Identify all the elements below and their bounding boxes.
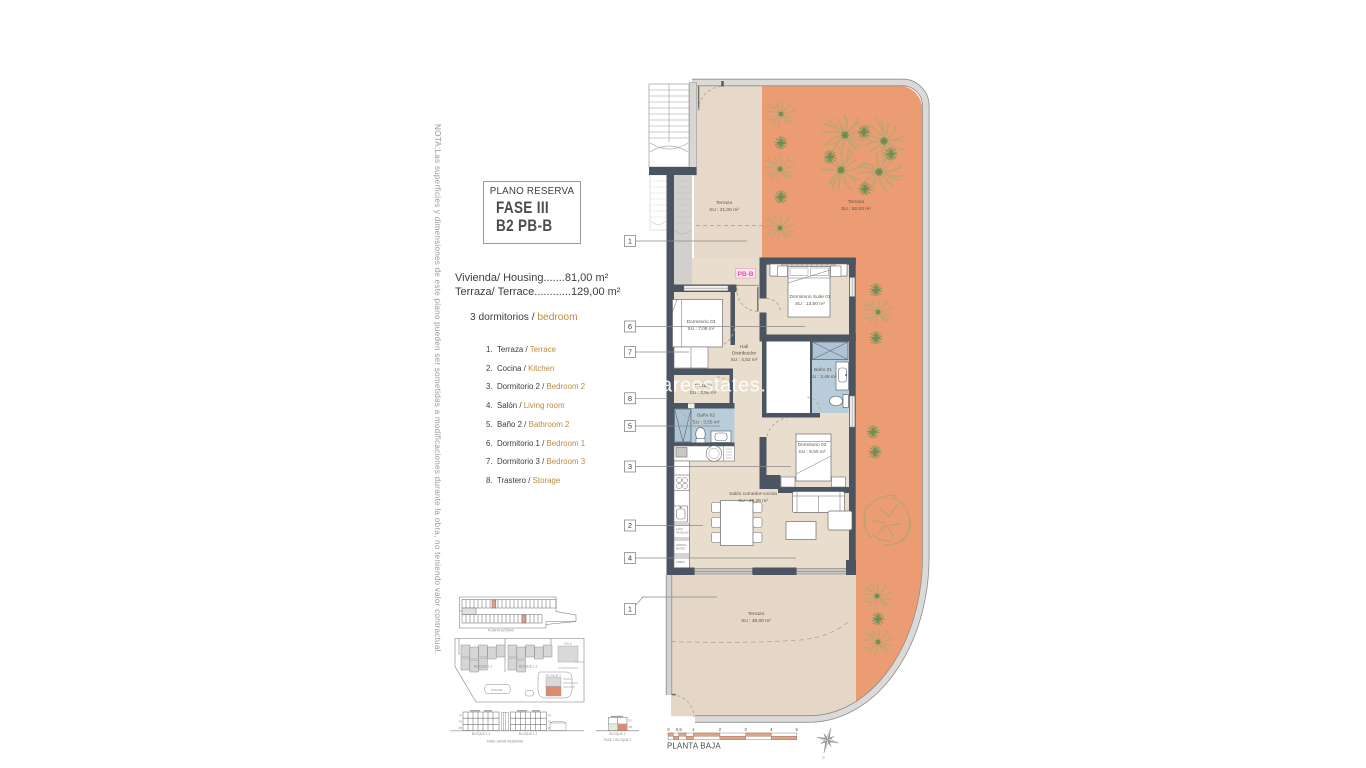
- svg-text:PISCINA: PISCINA: [491, 688, 502, 692]
- svg-text:MICRO: MICRO: [676, 547, 686, 551]
- svg-text:2: 2: [719, 727, 722, 732]
- svg-text:SU : 38,00 m²: SU : 38,00 m²: [741, 618, 771, 624]
- svg-text:FASE GRAN RESERVA: FASE GRAN RESERVA: [487, 740, 524, 744]
- svg-text:SU : 4,52 m²: SU : 4,52 m²: [731, 357, 758, 363]
- svg-text:7: 7: [628, 348, 632, 357]
- svg-text:PB-B: PB-B: [738, 271, 754, 278]
- svg-text:Hall: Hall: [740, 344, 748, 350]
- svg-text:4: 4: [628, 554, 632, 563]
- svg-text:SU : 3,45 m²: SU : 3,45 m²: [810, 374, 837, 380]
- svg-text:Dormitorio Suite 01: Dormitorio Suite 01: [789, 294, 830, 300]
- svg-text:VILLA: VILLA: [564, 642, 572, 646]
- svg-text:P1: P1: [629, 719, 633, 723]
- svg-text:BLOQUE 1.1: BLOQUE 1.1: [474, 665, 493, 669]
- svg-text:5: 5: [628, 422, 632, 431]
- svg-text:BLOQUE 2: BLOQUE 2: [610, 732, 626, 736]
- svg-text:P2: P2: [548, 714, 552, 718]
- svg-text:SU : 3,55 m²: SU : 3,55 m²: [693, 420, 720, 426]
- svg-text:SU : 9,50 m²: SU : 9,50 m²: [799, 449, 826, 455]
- svg-text:Salón comedor-cocina: Salón comedor-cocina: [729, 491, 777, 497]
- svg-text:5: 5: [796, 727, 799, 732]
- svg-text:BLOQUE 2: BLOQUE 2: [546, 674, 561, 678]
- svg-text:BLOQUE 1.2: BLOQUE 1.2: [519, 665, 538, 669]
- svg-text:Terraza: Terraza: [716, 200, 732, 206]
- svg-text:PB: PB: [629, 725, 633, 729]
- svg-text:Terraza: Terraza: [848, 199, 864, 205]
- svg-text:1: 1: [628, 605, 632, 614]
- svg-text:Terraza: Terraza: [748, 611, 764, 617]
- svg-text:SU : 26,26 m²: SU : 26,26 m²: [738, 498, 768, 504]
- svg-text:8: 8: [628, 394, 632, 403]
- svg-text:3: 3: [628, 462, 632, 471]
- svg-text:6: 6: [628, 322, 632, 331]
- svg-text:N: N: [822, 756, 826, 761]
- svg-text:Baño 01: Baño 01: [814, 367, 832, 373]
- svg-text:3: 3: [744, 727, 747, 732]
- svg-text:SU : 21,00 m²: SU : 21,00 m²: [709, 207, 739, 213]
- svg-text:SU : 62,00 m²: SU : 62,00 m²: [841, 206, 871, 212]
- svg-text:P2: P2: [459, 714, 463, 718]
- svg-text:1: 1: [692, 727, 695, 732]
- svg-text:Distribuidor: Distribuidor: [732, 351, 757, 357]
- svg-text:areestates.com: areestates.com: [661, 375, 806, 397]
- svg-text:1: 1: [628, 237, 632, 246]
- svg-text:Dormitorio 02: Dormitorio 02: [798, 442, 827, 448]
- svg-text:BLOQUE 1.1: BLOQUE 1.1: [472, 732, 491, 736]
- svg-text:BLOQUE 1.2: BLOQUE 1.2: [519, 732, 538, 736]
- svg-text:2: 2: [628, 521, 632, 530]
- svg-text:VAJILLAS: VAJILLAS: [676, 531, 689, 535]
- svg-text:Baño 02: Baño 02: [697, 413, 715, 419]
- svg-text:PLANTA BAJA: PLANTA BAJA: [667, 742, 721, 751]
- svg-text:PLANTA SÓTANO: PLANTA SÓTANO: [488, 628, 515, 633]
- svg-text:SU : 13,50 m²: SU : 13,50 m²: [795, 301, 825, 307]
- svg-text:SU : 7,08 m²: SU : 7,08 m²: [688, 326, 715, 332]
- svg-text:0,5: 0,5: [676, 727, 683, 732]
- svg-text:FASE 2 BLOQUE 2: FASE 2 BLOQUE 2: [604, 738, 632, 742]
- svg-text:FRIGO: FRIGO: [676, 560, 686, 564]
- svg-text:0: 0: [667, 727, 670, 732]
- svg-text:PB: PB: [459, 726, 463, 730]
- svg-text:Dormitorio 03: Dormitorio 03: [687, 319, 716, 325]
- svg-text:P1: P1: [459, 720, 463, 724]
- svg-text:4: 4: [770, 727, 773, 732]
